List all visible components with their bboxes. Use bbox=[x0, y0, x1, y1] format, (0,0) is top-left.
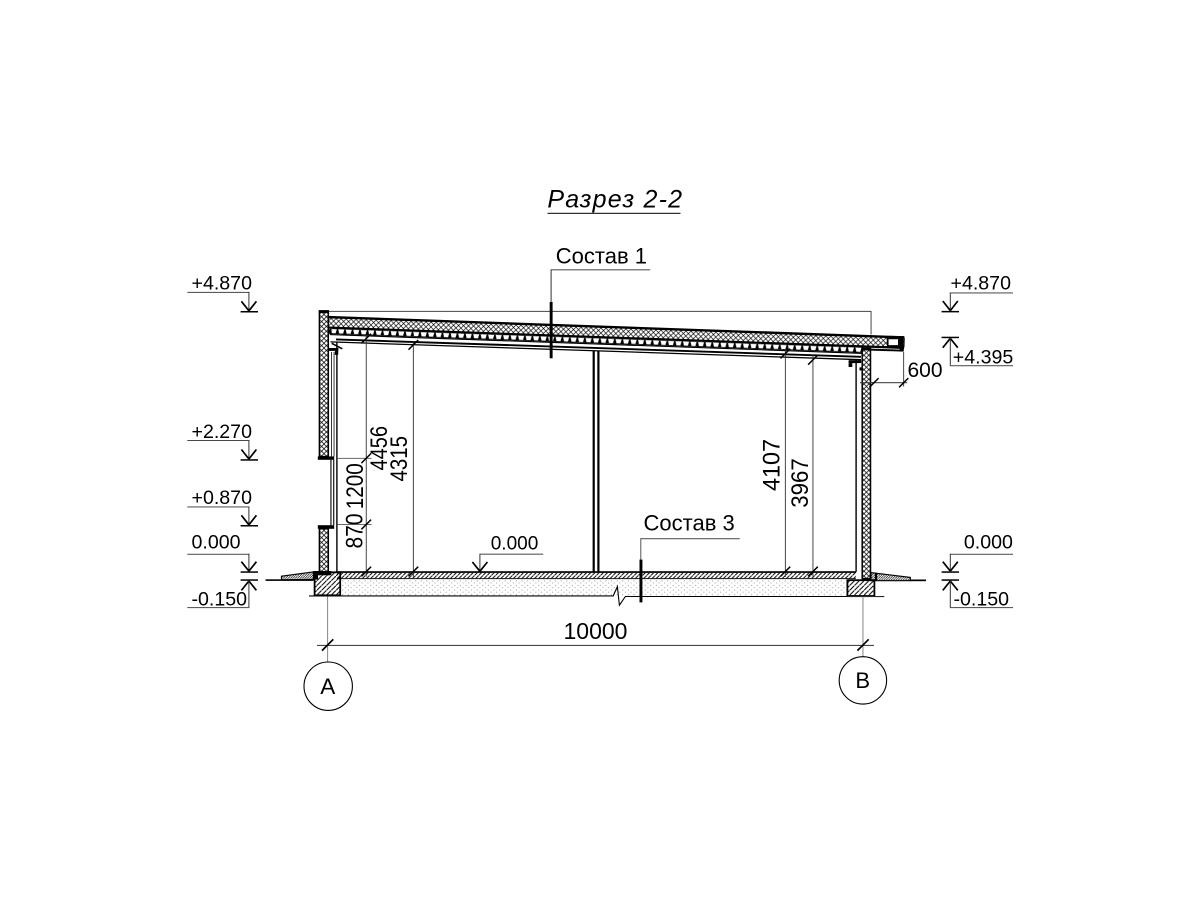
svg-text:4315: 4315 bbox=[386, 436, 413, 482]
svg-text:870: 870 bbox=[342, 514, 369, 549]
svg-text:+0.870: +0.870 bbox=[192, 487, 253, 509]
svg-text:0.000: 0.000 bbox=[491, 533, 539, 554]
svg-text:Состав 3: Состав 3 bbox=[644, 510, 735, 535]
svg-text:B: B bbox=[855, 668, 870, 693]
svg-text:A: A bbox=[320, 674, 335, 699]
svg-text:Состав 1: Состав 1 bbox=[556, 244, 647, 269]
svg-text:Разрез 2-2: Разрез 2-2 bbox=[547, 186, 683, 214]
svg-text:+4.395: +4.395 bbox=[953, 346, 1014, 368]
svg-text:-0.150: -0.150 bbox=[954, 589, 1010, 611]
svg-text:+2.270: +2.270 bbox=[192, 421, 253, 443]
svg-text:0.000: 0.000 bbox=[964, 532, 1013, 554]
svg-text:+4.870: +4.870 bbox=[951, 272, 1012, 294]
svg-text:600: 600 bbox=[908, 359, 943, 382]
svg-text:-0.150: -0.150 bbox=[192, 589, 248, 611]
svg-text:+4.870: +4.870 bbox=[192, 273, 253, 295]
svg-text:0.000: 0.000 bbox=[192, 532, 241, 554]
svg-text:4107: 4107 bbox=[759, 439, 786, 491]
svg-text:3967: 3967 bbox=[787, 458, 814, 508]
svg-text:10000: 10000 bbox=[564, 618, 628, 644]
